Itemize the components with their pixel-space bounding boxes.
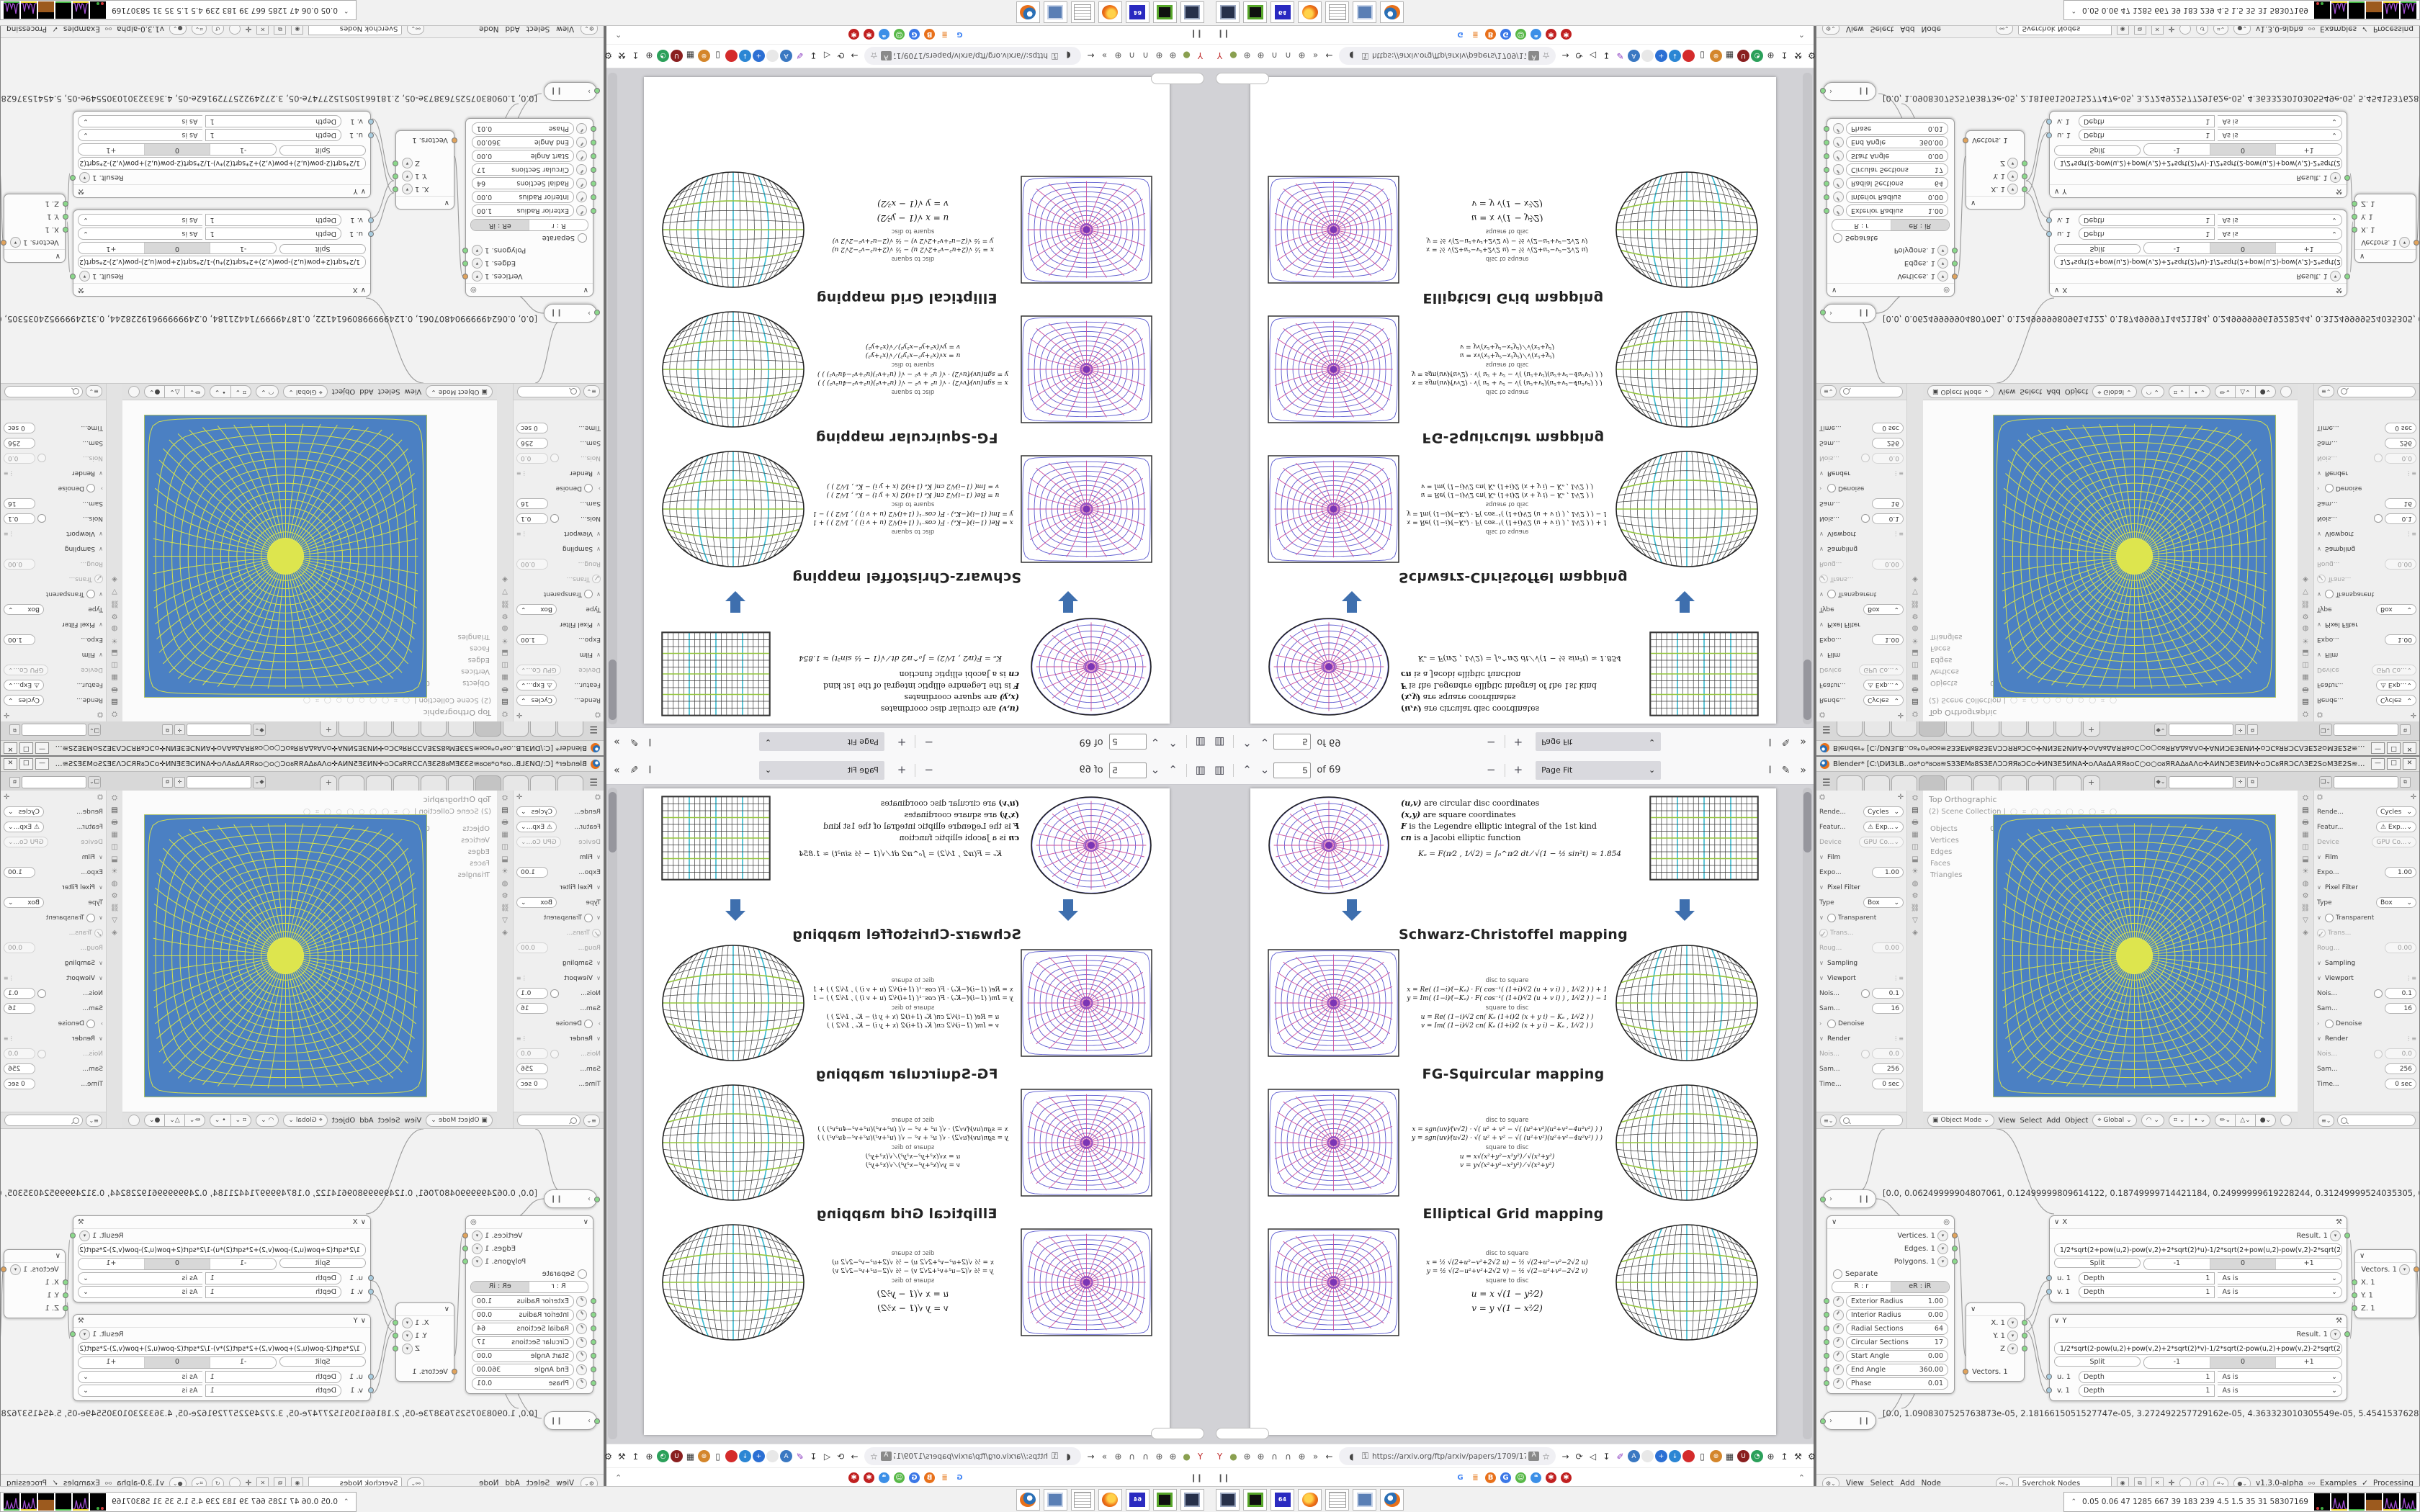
prop-value[interactable]: 0.0 xyxy=(1872,453,1904,464)
properties-tab-icon-9[interactable]: ⚙ xyxy=(502,612,508,619)
field-value[interactable]: Circular Sections17 xyxy=(1846,163,1948,176)
lock-icon[interactable]: ⚿ xyxy=(1359,50,1371,62)
checkbox-checked-icon[interactable]: ✓ xyxy=(1819,575,1828,584)
mode-select[interactable]: ▣Object Mode⌄ xyxy=(1927,1114,1994,1127)
gear-flower-icon[interactable]: ✱ xyxy=(1546,1472,1556,1483)
editor-type-icon[interactable]: ≡⌄ xyxy=(583,386,600,398)
properties-search[interactable] xyxy=(517,1115,581,1126)
properties-tab-icon-5[interactable]: ◫ xyxy=(111,844,117,851)
overflow-chevrons-icon[interactable]: » xyxy=(1309,1450,1322,1462)
dropdown-icon[interactable]: ▾ xyxy=(79,173,90,184)
depth-field[interactable]: Depth1 xyxy=(205,1385,341,1397)
mode-0[interactable]: R : r xyxy=(1832,1282,1891,1292)
checkbox-icon[interactable] xyxy=(86,485,95,493)
gear-flower-icon[interactable]: ✱ xyxy=(1546,30,1556,40)
smiley-icon[interactable]: ☺ xyxy=(894,30,905,40)
depth-field[interactable]: Depth1 xyxy=(205,1272,341,1284)
properties-tab-icon-8[interactable]: ◍ xyxy=(1912,624,1919,631)
stackoverflow-icon[interactable]: ≣ xyxy=(1470,30,1481,40)
checkbox-checked-icon[interactable]: ✓ xyxy=(1819,929,1828,937)
globe-icon-3[interactable]: ⊕ xyxy=(1112,50,1124,62)
properties-tab-icon-11[interactable]: ▽ xyxy=(112,917,117,924)
range-0[interactable]: 0 xyxy=(2210,243,2276,253)
asis-select[interactable]: As is⌄ xyxy=(2218,214,2342,226)
prop-value[interactable]: 0 sec xyxy=(1872,423,1904,433)
prop-value[interactable]: 0.1 xyxy=(516,988,548,999)
taskbar-remote[interactable] xyxy=(1216,2,1240,24)
checkbox-checked-icon[interactable]: ✓ xyxy=(94,929,103,937)
properties-tab-icon-5[interactable]: ◫ xyxy=(2302,661,2308,668)
page-down-icon[interactable]: ⌄ xyxy=(1147,762,1165,778)
add-workspace-tab[interactable]: + xyxy=(2083,775,2100,791)
range-0[interactable]: 0 xyxy=(145,243,211,253)
menu-view[interactable]: View xyxy=(1999,388,2016,396)
properties-tab-icon-2[interactable]: ▤ xyxy=(111,698,117,705)
vector-split-node[interactable]: ∨X. 1▾Y. 1▾Z▾Vectors. 1 xyxy=(1966,130,2025,210)
paint-mask[interactable]: ✏⌄ xyxy=(2215,1114,2236,1127)
workspace-tab-7[interactable] xyxy=(2001,775,2027,791)
viewlayer-name-field[interactable] xyxy=(22,776,86,788)
headset-icon-2[interactable]: ∩ xyxy=(1282,1450,1294,1462)
pause-icon[interactable]: ❙❙ xyxy=(1217,30,1229,40)
properties-tab-icon-9[interactable]: ⚙ xyxy=(502,893,508,900)
prop-value[interactable]: ⚠ Exp...⌄ xyxy=(1863,680,1904,690)
headset-icon-2[interactable]: ∩ xyxy=(1282,50,1294,62)
dropdown-icon[interactable]: ▾ xyxy=(2007,1318,2018,1328)
stackoverflow-icon[interactable]: ≣ xyxy=(939,1472,950,1483)
overflow-chevrons-icon[interactable]: » xyxy=(1098,1450,1111,1462)
properties-tab-icon-6[interactable]: ⬓ xyxy=(111,856,117,863)
collapse-icon[interactable]: ∨ xyxy=(2054,1317,2059,1325)
checkbox-icon[interactable] xyxy=(37,515,46,523)
chat-icon[interactable]: ❝ xyxy=(1531,1472,1541,1483)
formula-node-x[interactable]: ∨X⚒Result. 1▾1/2*sqrt(2+pow(u,2)-pow(v,2… xyxy=(2049,210,2347,297)
properties-tab-icon-10[interactable]: ⛓ xyxy=(110,905,120,912)
collapse-caret-icon[interactable]: ⌃ xyxy=(1798,1473,1805,1482)
checkbox-icon[interactable] xyxy=(2374,515,2383,523)
range-+1[interactable]: +1 xyxy=(79,243,145,253)
pdf-scrollbar[interactable] xyxy=(608,788,617,1439)
zoom-out-icon[interactable]: − xyxy=(920,762,938,778)
prop-value[interactable]: Cycles⌄ xyxy=(1863,806,1904,817)
headset-icon-2[interactable]: ∩ xyxy=(1126,1450,1138,1462)
collapse-icon[interactable]: ∨ xyxy=(2359,1252,2365,1260)
circle-icon[interactable] xyxy=(766,50,779,62)
globe-icon[interactable]: ⊕ xyxy=(1241,50,1253,62)
depth-field[interactable]: Depth1 xyxy=(2079,1272,2215,1284)
scene-name-field[interactable] xyxy=(2169,724,2233,736)
prop-value[interactable]: Cycles⌄ xyxy=(2376,806,2416,817)
blender-titlebar[interactable]: Blender* [C:\DИЗLB..ᴑᴕ*ᴑ*ᴕᴑᴕ≋SЗЗЕМᴕ8SЗЕΛ… xyxy=(1,740,604,755)
depth-field[interactable]: Depth1 xyxy=(2079,1371,2215,1383)
split-button[interactable]: Split xyxy=(279,1258,366,1268)
workspace-tab-4[interactable] xyxy=(1919,775,1945,791)
record-icon[interactable] xyxy=(725,1450,738,1462)
formula-node-y[interactable]: ∨Y⚒Result. 1▾1/2*sqrt(2-pow(u,2)+pow(v,2… xyxy=(2049,111,2347,198)
proportional-edit[interactable]: • ⌄ xyxy=(210,385,230,398)
pin-icon[interactable]: ✛ xyxy=(2235,724,2246,735)
proportional-edit[interactable]: • ⌄ xyxy=(2190,385,2210,398)
vector-split-node[interactable]: ∨X. 1▾Y. 1▾Z▾Vectors. 1 xyxy=(1966,1302,2025,1382)
workspace-tab-2[interactable] xyxy=(1864,775,1890,791)
google-blue-icon[interactable]: G xyxy=(1500,1472,1511,1483)
prop-value[interactable]: ⚠ Exp...⌄ xyxy=(4,822,44,832)
properties-search[interactable] xyxy=(1839,1115,1903,1126)
draw-icon[interactable]: ✎ xyxy=(630,765,639,776)
prop-value[interactable]: 0.00 xyxy=(2385,559,2416,570)
prop-value[interactable]: 1.00 xyxy=(4,634,35,645)
mode-1[interactable]: eR : iR xyxy=(1891,220,1950,230)
properties-tab-icon-5[interactable]: ◫ xyxy=(111,661,117,668)
workspace-tab-6[interactable] xyxy=(421,775,447,791)
minimize-button[interactable]: — xyxy=(35,758,49,770)
range--1[interactable]: -1 xyxy=(210,243,276,253)
download-icon[interactable]: ↧ xyxy=(1600,1450,1613,1462)
properties-tab-icon-9[interactable]: ⚙ xyxy=(2303,612,2309,619)
shield-ud-icon[interactable]: U xyxy=(1737,50,1749,62)
prop-value[interactable]: Cycles⌄ xyxy=(1863,695,1904,706)
shading-sphere[interactable]: ●⌄ xyxy=(2256,1114,2276,1127)
menu-select[interactable]: Select xyxy=(378,388,400,396)
workspace-tab-1[interactable] xyxy=(1837,721,1863,737)
scene-selector[interactable]: ◆⌄✛⧉ xyxy=(2154,776,2258,788)
forward-icon[interactable]: → xyxy=(1559,1450,1572,1462)
menu-view[interactable]: View xyxy=(1999,1117,2016,1125)
formula-node-x[interactable]: ∨X⚒Result. 1▾1/2*sqrt(2+pow(u,2)-pow(v,2… xyxy=(73,210,371,297)
properties-search-2[interactable] xyxy=(4,386,83,397)
collapse-icon[interactable]: ∨ xyxy=(444,199,449,207)
dial-icon[interactable] xyxy=(1833,1323,1844,1334)
speaker-icon[interactable]: ◁ xyxy=(1587,50,1599,62)
prop-value[interactable]: 256 xyxy=(516,438,548,449)
properties-tab-icon-3[interactable]: 🖶 xyxy=(1912,819,1918,827)
prop-value[interactable]: 0.0 xyxy=(516,1048,548,1059)
prop-value[interactable]: 0.0 xyxy=(1872,1048,1904,1059)
depth-field[interactable]: Depth1 xyxy=(205,115,341,127)
pin-icon-2[interactable]: ✛ xyxy=(2411,711,2416,719)
bookmark-star-icon[interactable]: ☆ xyxy=(870,1452,878,1462)
taskbar-firefox[interactable] xyxy=(1298,2,1322,24)
globe-icon-4[interactable]: ⊕ xyxy=(1765,50,1777,62)
pdf-viewer[interactable]: (u,v) are circular disc coordinates(x,y)… xyxy=(1210,68,1814,727)
properties-tab-icon-11[interactable]: ▽ xyxy=(2303,917,2308,924)
editor-menu-icon[interactable]: ☰ xyxy=(589,724,598,734)
bing-icon[interactable]: B xyxy=(924,30,935,40)
vector-split-node[interactable]: ∨X. 1▾Y. 1▾Z▾Vectors. 1 xyxy=(395,130,454,210)
prop-value[interactable]: ⚠ Exp...⌄ xyxy=(2376,680,2416,690)
range-0[interactable]: 0 xyxy=(145,1357,211,1368)
properties-tab-icon-1[interactable]: ⛭ xyxy=(1912,710,1918,717)
taskbar-blender[interactable] xyxy=(1016,1489,1040,1511)
split-button[interactable]: Split xyxy=(2054,145,2141,156)
properties-tab-icon-4[interactable]: ▦ xyxy=(111,832,117,839)
field-value[interactable]: Radial Sections64 xyxy=(472,177,574,189)
copy-icon[interactable]: ⧉ xyxy=(2247,724,2258,735)
translate-icon[interactable]: A xyxy=(1628,1450,1640,1462)
viewlayer-selector[interactable]: ❏⌄⧉ xyxy=(9,724,101,736)
page-up-icon[interactable]: ⌃ xyxy=(1164,734,1182,750)
shading-toggle[interactable] xyxy=(2280,1115,2292,1126)
prop-value[interactable]: ⚠ Exp...⌄ xyxy=(1863,822,1904,832)
copy-icon-2[interactable]: ⧉ xyxy=(9,724,20,735)
properties-tab-icon-3[interactable]: 🖶 xyxy=(2302,685,2308,693)
formula-field[interactable]: 1/2*sqrt(2+pow(u,2)-pow(v,2)+2*sqrt(2)*u… xyxy=(78,1243,366,1256)
zoom-mode-select[interactable]: Page Fit⌄ xyxy=(1536,733,1661,752)
page-translate-icon[interactable]: A xyxy=(881,1452,892,1461)
green-dot-icon[interactable]: ● xyxy=(1227,1450,1240,1462)
record-icon[interactable] xyxy=(1682,1450,1695,1462)
snap-toggle[interactable]: ◠ ⌄ xyxy=(256,1114,279,1127)
dropdown-icon[interactable]: ▾ xyxy=(402,1344,413,1354)
pin-icon[interactable]: ✛ xyxy=(2235,777,2246,788)
properties-tab-icon-6[interactable]: ⬓ xyxy=(501,856,508,863)
properties-tab-icon-2[interactable]: ▤ xyxy=(501,807,508,814)
field-value[interactable]: Start Angle0.00 xyxy=(472,1350,574,1362)
collapse-icon[interactable]: ∨ xyxy=(1832,1218,1837,1226)
checkbox-icon[interactable] xyxy=(1861,1050,1870,1058)
depth-field[interactable]: Depth1 xyxy=(2079,228,2215,240)
snap-target[interactable]: ⌗ ⌄ xyxy=(230,385,251,398)
properties-tab-icon-10[interactable]: ⛓ xyxy=(1911,600,1920,607)
speaker-icon[interactable]: ◁ xyxy=(821,1450,833,1462)
google-icon[interactable]: G xyxy=(1455,1472,1466,1483)
field-value[interactable]: Start Angle0.00 xyxy=(472,150,574,162)
properties-tab-icon-3[interactable]: 🖶 xyxy=(501,685,508,693)
google-blue-icon[interactable]: G xyxy=(909,30,920,40)
zoom-in-icon[interactable]: + xyxy=(1510,762,1528,778)
trash-icon[interactable]: ▯ xyxy=(1696,1450,1708,1462)
headset-icon[interactable]: ∩ xyxy=(1139,50,1152,62)
pdf-scrollbar[interactable] xyxy=(608,73,617,724)
dropdown-icon[interactable]: ▾ xyxy=(79,1230,90,1241)
dropdown-icon[interactable]: ▾ xyxy=(2007,1344,2018,1354)
plus-icon[interactable]: + xyxy=(753,1450,765,1462)
properties-search-2[interactable] xyxy=(2337,386,2416,397)
prop-value[interactable]: Box⌄ xyxy=(2376,604,2416,615)
editor-type-icon[interactable]: ≡⌄ xyxy=(1820,386,1837,398)
maximize-button[interactable]: □ xyxy=(2387,758,2401,770)
circle-icon[interactable] xyxy=(1641,1450,1654,1462)
pause-icon[interactable]: ❙❙ xyxy=(1191,30,1203,40)
dropdown-icon[interactable]: ▾ xyxy=(472,271,483,282)
box-icon[interactable]: ▦ xyxy=(684,1450,696,1462)
collapse-icon[interactable]: ∨ xyxy=(361,187,366,195)
field-value[interactable]: End Angle360.00 xyxy=(472,1364,574,1376)
properties-tab-icon-12[interactable]: ◈ xyxy=(2303,575,2308,582)
checkbox-icon[interactable] xyxy=(86,914,95,922)
pdf-float-widget[interactable] xyxy=(1151,73,1204,84)
field-value[interactable]: Exterior Radius1.00 xyxy=(472,204,574,217)
scene-selector[interactable]: ◆⌄✛⧉ xyxy=(2154,724,2258,736)
dial-icon[interactable] xyxy=(1833,1351,1844,1362)
prop-value[interactable]: 0.1 xyxy=(1872,513,1904,524)
dial-icon[interactable] xyxy=(576,123,587,134)
collapsed-viewer-node-2[interactable]: ›❙❙ xyxy=(544,82,597,101)
depth-field[interactable]: Depth1 xyxy=(205,228,341,240)
prop-value[interactable]: 256 xyxy=(4,438,35,449)
globe-icon-2[interactable]: ⊕ xyxy=(1153,1450,1165,1462)
prop-value[interactable]: Box⌄ xyxy=(2376,897,2416,908)
menu-add[interactable]: Add xyxy=(359,388,373,396)
globe-icon-2[interactable]: ⊕ xyxy=(1255,1450,1267,1462)
paint-mask[interactable]: ✏⌄ xyxy=(2215,385,2236,398)
depth-field[interactable]: Depth1 xyxy=(205,1371,341,1383)
asis-select[interactable]: As is⌄ xyxy=(78,228,202,240)
text-select-icon[interactable]: I xyxy=(648,765,651,776)
thumbsup-icon[interactable]: ↥ xyxy=(1778,1450,1791,1462)
workspace-tab-4[interactable] xyxy=(475,721,501,737)
properties-tab-icon-2[interactable]: ▤ xyxy=(111,807,117,814)
menu-object[interactable]: Object xyxy=(2065,1117,2089,1125)
globe-icon[interactable]: ⊕ xyxy=(1167,50,1179,62)
collapsed-viewer-node-2[interactable]: ›❙❙ xyxy=(1823,82,1876,101)
clock-icon[interactable]: ◔ xyxy=(1751,1450,1763,1462)
properties-tab-icon-6[interactable]: ⬓ xyxy=(2302,856,2308,863)
viewlayer-selector[interactable]: ❏⌄⧉ xyxy=(2319,724,2411,736)
prop-value[interactable]: 0.1 xyxy=(2385,988,2416,999)
workspace-tab-9[interactable] xyxy=(2056,721,2081,737)
separate-checkbox[interactable] xyxy=(578,1269,587,1279)
google-blue-icon[interactable]: G xyxy=(1500,30,1511,40)
globe-icon-3[interactable]: ⊕ xyxy=(1296,50,1308,62)
pdf-viewer[interactable]: (u,v) are circular disc coordinates(x,y)… xyxy=(606,785,1210,1444)
prop-value[interactable]: 16 xyxy=(516,1003,548,1014)
dial-icon[interactable] xyxy=(1833,192,1844,202)
editor-type-icon-2[interactable]: ≡⌄ xyxy=(2318,386,2334,398)
properties-tab-icon-7[interactable]: ☀ xyxy=(112,868,118,876)
workspace-tab-1[interactable] xyxy=(1837,775,1863,791)
mode-1[interactable]: eR : iR xyxy=(1891,1282,1950,1292)
scene-name-field[interactable] xyxy=(2169,776,2233,788)
page-up-icon[interactable]: ⌃ xyxy=(1238,762,1256,778)
properties-tab-icon-8[interactable]: ◍ xyxy=(502,624,508,631)
taskbar-disktool[interactable] xyxy=(1153,2,1177,24)
taskbar-notepad[interactable] xyxy=(1071,2,1095,24)
globe-icon-2[interactable]: ⊕ xyxy=(1255,50,1267,62)
pdf-float-widget[interactable] xyxy=(1216,73,1269,84)
vector-join-node[interactable]: ∨Vectors. 1▾X. 1Y. 1Z. 1 xyxy=(2354,194,2416,263)
thumbsup-icon[interactable]: ↥ xyxy=(629,1450,642,1462)
properties-tab-icon-1[interactable]: ⛭ xyxy=(112,795,117,802)
checkbox-icon[interactable] xyxy=(550,454,559,463)
savefrom-icon[interactable]: ↓ xyxy=(739,1450,751,1462)
dropdown-icon[interactable]: ▾ xyxy=(472,1256,483,1267)
range-+1[interactable]: +1 xyxy=(79,144,145,155)
page-number-input[interactable] xyxy=(1273,734,1311,750)
dial-icon[interactable] xyxy=(576,150,587,161)
prop-value[interactable]: GPU Co...⌄ xyxy=(2372,665,2416,675)
range-+1[interactable]: +1 xyxy=(79,1357,145,1368)
checkbox-icon[interactable] xyxy=(1827,485,1836,493)
zoom-mode-select[interactable]: Page Fit⌄ xyxy=(759,733,884,752)
properties-tab-icon-11[interactable]: ▽ xyxy=(502,917,508,924)
depth-field[interactable]: Depth1 xyxy=(2079,1286,2215,1298)
prop-value[interactable]: Cycles⌄ xyxy=(2376,695,2416,706)
properties-context-icon-2[interactable]: ⛭ xyxy=(2317,793,2323,801)
properties-context-icon[interactable]: ⛭ xyxy=(595,793,601,801)
prop-value[interactable]: 16 xyxy=(2385,498,2416,509)
viewport-3d[interactable]: Top Orthographic (2) Scene Collection |◯… xyxy=(122,791,497,1128)
page-number-input[interactable] xyxy=(1273,762,1311,778)
dial-icon[interactable] xyxy=(576,1378,587,1389)
dropdown-icon[interactable]: ▾ xyxy=(1937,271,1948,282)
editor-type-icon-2[interactable]: ≡⌄ xyxy=(2318,1115,2334,1127)
properties-tab-icon-7[interactable]: ☀ xyxy=(502,868,508,876)
checkbox-checked-icon[interactable]: ✓ xyxy=(592,575,601,584)
collapse-icon[interactable]: ∨ xyxy=(2359,252,2365,260)
properties-tab-icon-3[interactable]: 🖶 xyxy=(111,819,117,827)
properties-tab-icon-5[interactable]: ◫ xyxy=(501,661,508,668)
checkbox-icon[interactable] xyxy=(550,1050,559,1058)
forward-icon[interactable]: → xyxy=(848,50,861,62)
asis-select[interactable]: As is⌄ xyxy=(78,1272,202,1284)
properties-tab-icon-10[interactable]: ⛓ xyxy=(2301,905,2311,912)
orientation-select[interactable]: ⌖Global⌄ xyxy=(2092,1114,2136,1127)
workspace-tab-6[interactable] xyxy=(1973,775,1999,791)
translate-icon[interactable]: A xyxy=(780,50,792,62)
asis-select[interactable]: As is⌄ xyxy=(2218,1385,2342,1397)
dropdown-icon[interactable]: ▾ xyxy=(2330,271,2341,282)
sidebar-toggle-icon[interactable]: ▥ xyxy=(1191,762,1210,778)
headset-icon[interactable]: ∩ xyxy=(1139,1450,1152,1462)
workspace-tab-4[interactable] xyxy=(1919,721,1945,737)
thumbsup-icon[interactable]: ↥ xyxy=(629,50,642,62)
dropdown-icon[interactable]: ▾ xyxy=(2007,184,2018,195)
overflow-chevrons-icon[interactable]: » xyxy=(1098,50,1111,62)
properties-tab-icon-4[interactable]: ▦ xyxy=(2302,673,2308,680)
gear-flower-icon-2[interactable]: ✱ xyxy=(1561,1472,1572,1483)
properties-tab-icon-12[interactable]: ◈ xyxy=(1912,575,1918,582)
back-icon[interactable]: ← xyxy=(1323,50,1335,62)
workspace-tab-5[interactable] xyxy=(448,775,474,791)
asis-select[interactable]: As is⌄ xyxy=(78,214,202,226)
workspace-tab-9[interactable] xyxy=(339,775,364,791)
collapse-icon[interactable]: ∨ xyxy=(55,252,60,260)
url-bar[interactable]: ◖ ⚿ https://arxiv.org/ftp/arxiv/papers/1… xyxy=(864,1447,1081,1465)
shield-icon[interactable]: ◖ xyxy=(1062,1450,1075,1462)
minimize-button[interactable]: — xyxy=(2371,758,2385,770)
lock-icon[interactable]: ⚿ xyxy=(1359,1450,1371,1462)
dropdown-icon[interactable]: ▾ xyxy=(2007,1331,2018,1341)
globe-color-icon[interactable]: ⊛ xyxy=(698,1450,710,1462)
workspace-tab-3[interactable] xyxy=(503,721,529,737)
properties-tab-icon-3[interactable]: 🖶 xyxy=(111,685,117,693)
page-translate-icon[interactable]: A xyxy=(1528,51,1539,60)
menu-object[interactable]: Object xyxy=(2065,388,2089,396)
workspace-tab-5[interactable] xyxy=(1946,721,1972,737)
mode-1[interactable]: eR : iR xyxy=(471,1282,530,1292)
workspace-tab-1[interactable] xyxy=(557,775,583,791)
clock-icon[interactable]: ◔ xyxy=(657,50,669,62)
collapse-icon[interactable]: ∨ xyxy=(2054,1218,2059,1226)
prop-value[interactable]: 0 sec xyxy=(1872,1079,1904,1089)
globe-icon-4[interactable]: ⊕ xyxy=(643,1450,655,1462)
formula-field[interactable]: 1/2*sqrt(2-pow(u,2)+pow(v,2)+2*sqrt(2)*v… xyxy=(78,1342,366,1355)
properties-tab-icon-6[interactable]: ⬓ xyxy=(501,649,508,656)
range--1[interactable]: -1 xyxy=(210,1259,276,1269)
checkbox-icon[interactable] xyxy=(2325,485,2334,493)
lock-icon[interactable]: ⚿ xyxy=(1049,50,1061,62)
paint-icon[interactable]: ✐ xyxy=(1614,50,1626,62)
page-number-input[interactable] xyxy=(1109,734,1147,750)
viewlayer-name-field[interactable] xyxy=(2334,724,2398,736)
field-value[interactable]: Exterior Radius1.00 xyxy=(1846,204,1948,217)
circle-icon[interactable] xyxy=(766,1450,779,1462)
workspace-tab-5[interactable] xyxy=(1946,775,1972,791)
properties-tab-icon-7[interactable]: ☀ xyxy=(2303,868,2309,876)
formula-node-x[interactable]: ∨X⚒Result. 1▾1/2*sqrt(2+pow(u,2)-pow(v,2… xyxy=(2049,1215,2347,1302)
collapse-icon[interactable]: ∨ xyxy=(583,1218,588,1226)
